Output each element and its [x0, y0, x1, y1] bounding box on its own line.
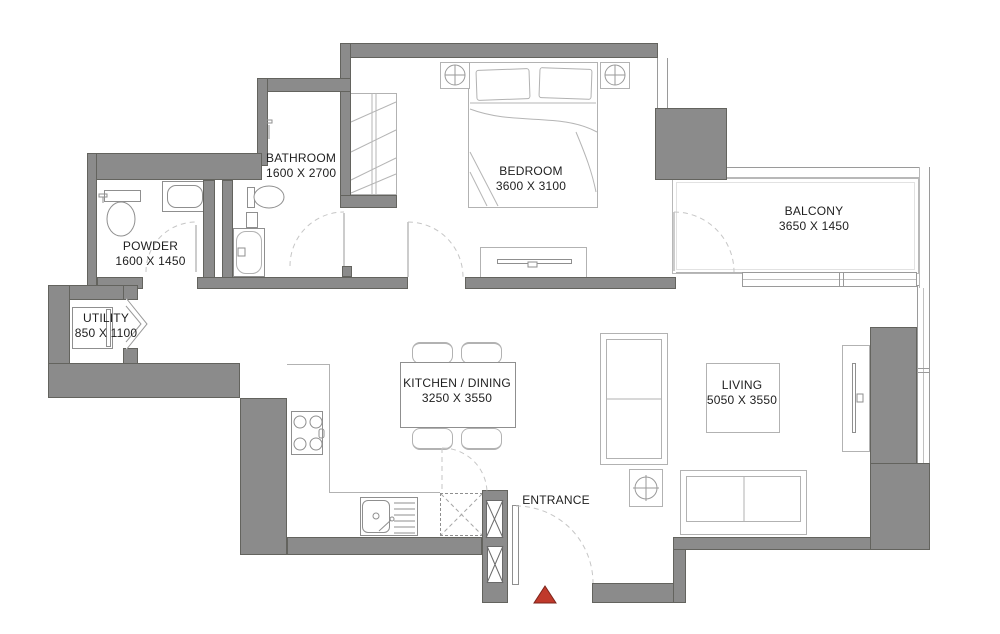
label-utility: UTILITY 850 X 1100 — [46, 311, 166, 341]
room-dims: 1600 X 1450 — [90, 254, 211, 269]
wall-entrance-right — [592, 583, 674, 603]
tv-bedroom — [497, 259, 572, 264]
window-living-right — [917, 285, 930, 465]
wall-powder-top — [87, 153, 262, 180]
toilet-powder-tank — [104, 190, 141, 202]
sofa-left-seat — [606, 339, 662, 459]
wall-living-bottom — [673, 537, 881, 550]
entrance-closet-appliance — [440, 493, 483, 536]
label-living: LIVING 5050 X 3550 — [682, 378, 802, 408]
wardrobe — [350, 93, 397, 195]
pillow-left — [475, 68, 530, 101]
room-name: BATHROOM — [266, 151, 336, 166]
label-powder: POWDER 1600 X 1450 — [90, 239, 211, 269]
wall-bathroom-top — [257, 78, 351, 92]
label-balcony: BALCONY 3650 X 1450 — [754, 204, 874, 234]
room-name: UTILITY — [46, 311, 166, 326]
wall-living-right-column — [870, 327, 917, 467]
label-bedroom: BEDROOM 3600 X 3100 — [471, 164, 591, 194]
door-leaves — [196, 212, 674, 277]
balcony-rail-top — [727, 167, 930, 178]
pillow-right — [538, 67, 592, 100]
dining-chair-2 — [461, 342, 502, 364]
dining-chair-3 — [412, 428, 453, 450]
wall-bedroom-top — [340, 43, 658, 58]
wall-kitchen-bottom — [287, 537, 482, 555]
floor-plan: BATHROOM 1600 X 2700 BEDROOM 3600 X 3100… — [0, 0, 1000, 634]
wall-kitchen-left — [240, 398, 287, 555]
room-name: BEDROOM — [471, 164, 591, 179]
counter-edge-bottom — [329, 492, 440, 493]
bathroom-cabinet — [246, 212, 258, 228]
balcony-rail-right — [919, 167, 930, 288]
label-bathroom: BATHROOM 1600 X 2700 — [266, 151, 336, 181]
nightstand-left — [440, 62, 470, 89]
room-dims: 3250 X 3550 — [387, 391, 527, 406]
toilet-powder-bowl — [107, 202, 135, 236]
side-table — [629, 469, 663, 507]
room-dims: 5050 X 3550 — [682, 393, 802, 408]
toilet-bathroom-bowl — [254, 186, 284, 208]
kitchen-sink-bowl — [362, 500, 390, 533]
wall-balcony-column — [655, 108, 727, 180]
entrance-door-leaf — [512, 505, 519, 585]
label-kitchen-dining: KITCHEN / DINING 3250 X 3550 — [387, 376, 527, 406]
wall-bathroom-closet — [340, 43, 351, 208]
room-dims: 1600 X 2700 — [266, 166, 336, 181]
dining-chair-1 — [412, 342, 453, 364]
bathtub-inner — [236, 231, 262, 274]
window-bedroom-east — [657, 58, 668, 108]
room-dims: 3600 X 3100 — [471, 179, 591, 194]
dining-chair-4 — [461, 428, 502, 450]
room-dims: 850 X 1100 — [46, 326, 166, 341]
toilet-bathroom-tank — [247, 187, 255, 208]
tv-living — [852, 363, 856, 433]
nightstand-right — [600, 62, 630, 89]
counter-edge-side — [329, 364, 330, 493]
entrance-door-arc — [516, 506, 593, 583]
sofa-bottom-seat — [686, 476, 801, 522]
room-name: KITCHEN / DINING — [387, 376, 527, 391]
room-name: BALCONY — [754, 204, 874, 219]
closet-door-arc — [442, 448, 487, 493]
wall-bedroom-bottom — [465, 277, 676, 289]
room-name: LIVING — [682, 378, 802, 393]
wall-closet-bottom — [340, 195, 397, 208]
bedroom-door-arc — [408, 222, 463, 277]
counter-edge-top — [287, 364, 330, 365]
wall-bathroom-left-lower — [222, 180, 233, 280]
label-entrance: ENTRANCE — [500, 493, 612, 508]
stove — [291, 411, 323, 455]
wall-living-right-lower — [870, 463, 930, 550]
entrance-marker-triangle — [534, 586, 556, 603]
balcony-edge-line — [676, 272, 742, 273]
shaft-box-2 — [487, 546, 503, 583]
wall-hall-top-main — [197, 277, 408, 289]
room-name: POWDER — [90, 239, 211, 254]
room-dims: 3650 X 1450 — [754, 219, 874, 234]
tv-console — [842, 345, 870, 452]
wall-bathroom-door-stub — [342, 266, 352, 277]
window-living-top — [742, 272, 917, 287]
powder-sink-basin — [167, 185, 203, 208]
wall-bottom-left — [48, 363, 240, 398]
wall-utility-stub-top — [123, 285, 138, 300]
bathroom-door-arc — [290, 212, 344, 266]
entrance-label: ENTRANCE — [522, 493, 590, 507]
